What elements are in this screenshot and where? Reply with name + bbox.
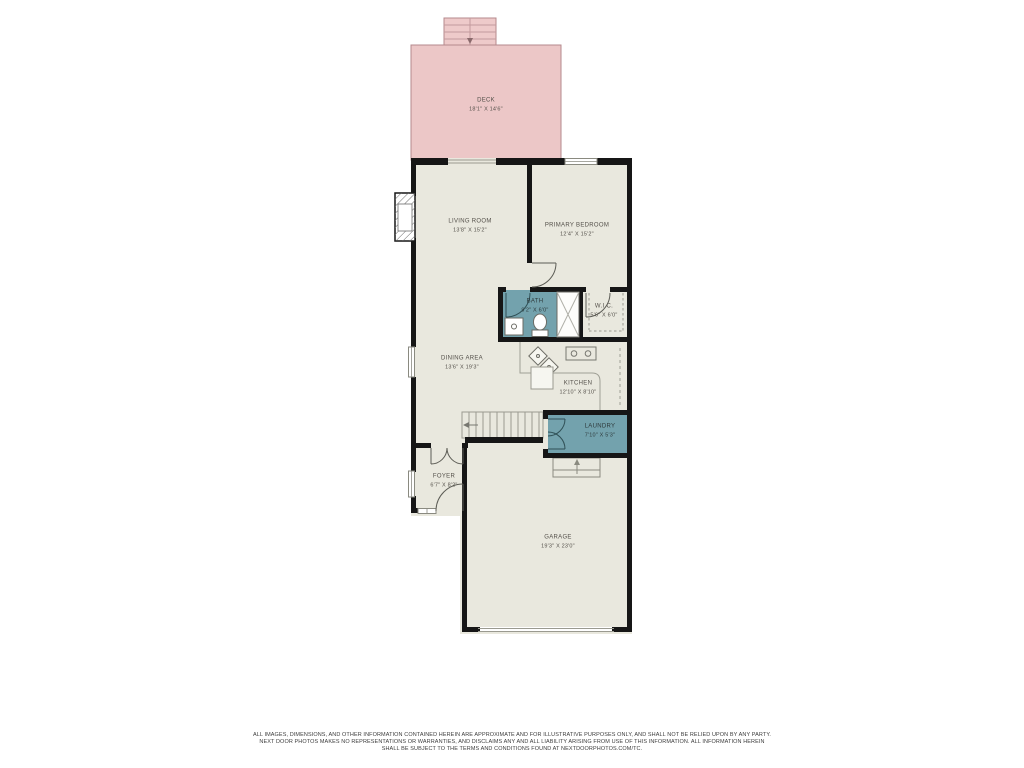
garage-door <box>478 627 614 632</box>
dishwasher-icon <box>531 367 553 389</box>
disclaimer-text: ALL IMAGES, DIMENSIONS, AND OTHER INFORM… <box>0 732 1024 753</box>
floor-plan-page: DECK 18'1" X 14'6" LIVING ROOM 13'8" X 1… <box>0 0 1024 768</box>
stairs <box>462 412 543 438</box>
disclaimer-line-2: NEXT DOOR PHOTOS MAKES NO REPRESENTATION… <box>0 739 1024 746</box>
shower-icon <box>557 292 579 337</box>
fireplace-icon <box>395 193 415 241</box>
floor-plan-canvas <box>0 0 1024 768</box>
deck-floor <box>411 45 561 160</box>
sink-icon <box>505 318 523 335</box>
garage-step-landing <box>553 458 600 477</box>
disclaimer-line-3: SHALL BE SUBJECT TO THE TERMS AND CONDIT… <box>0 746 1024 753</box>
floor-fills <box>411 158 632 634</box>
toilet-icon <box>532 314 548 337</box>
disclaimer-line-1: ALL IMAGES, DIMENSIONS, AND OTHER INFORM… <box>0 732 1024 739</box>
deck-area <box>411 18 561 160</box>
